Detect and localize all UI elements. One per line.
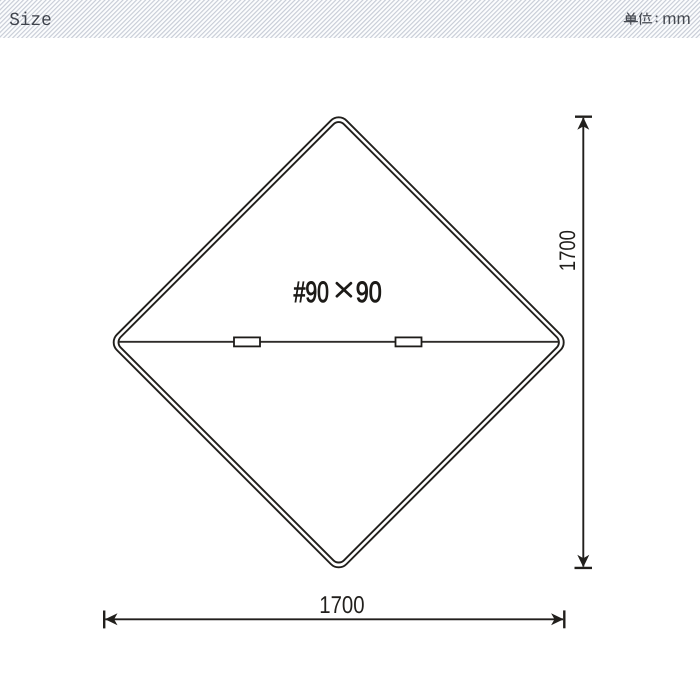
svg-text:Size: Size: [9, 10, 52, 31]
svg-text:1700: 1700: [319, 592, 364, 619]
svg-text:#90: #90: [294, 276, 329, 309]
svg-text:mm: mm: [662, 10, 690, 28]
svg-text:90: 90: [356, 276, 382, 309]
svg-text:1700: 1700: [555, 230, 580, 271]
